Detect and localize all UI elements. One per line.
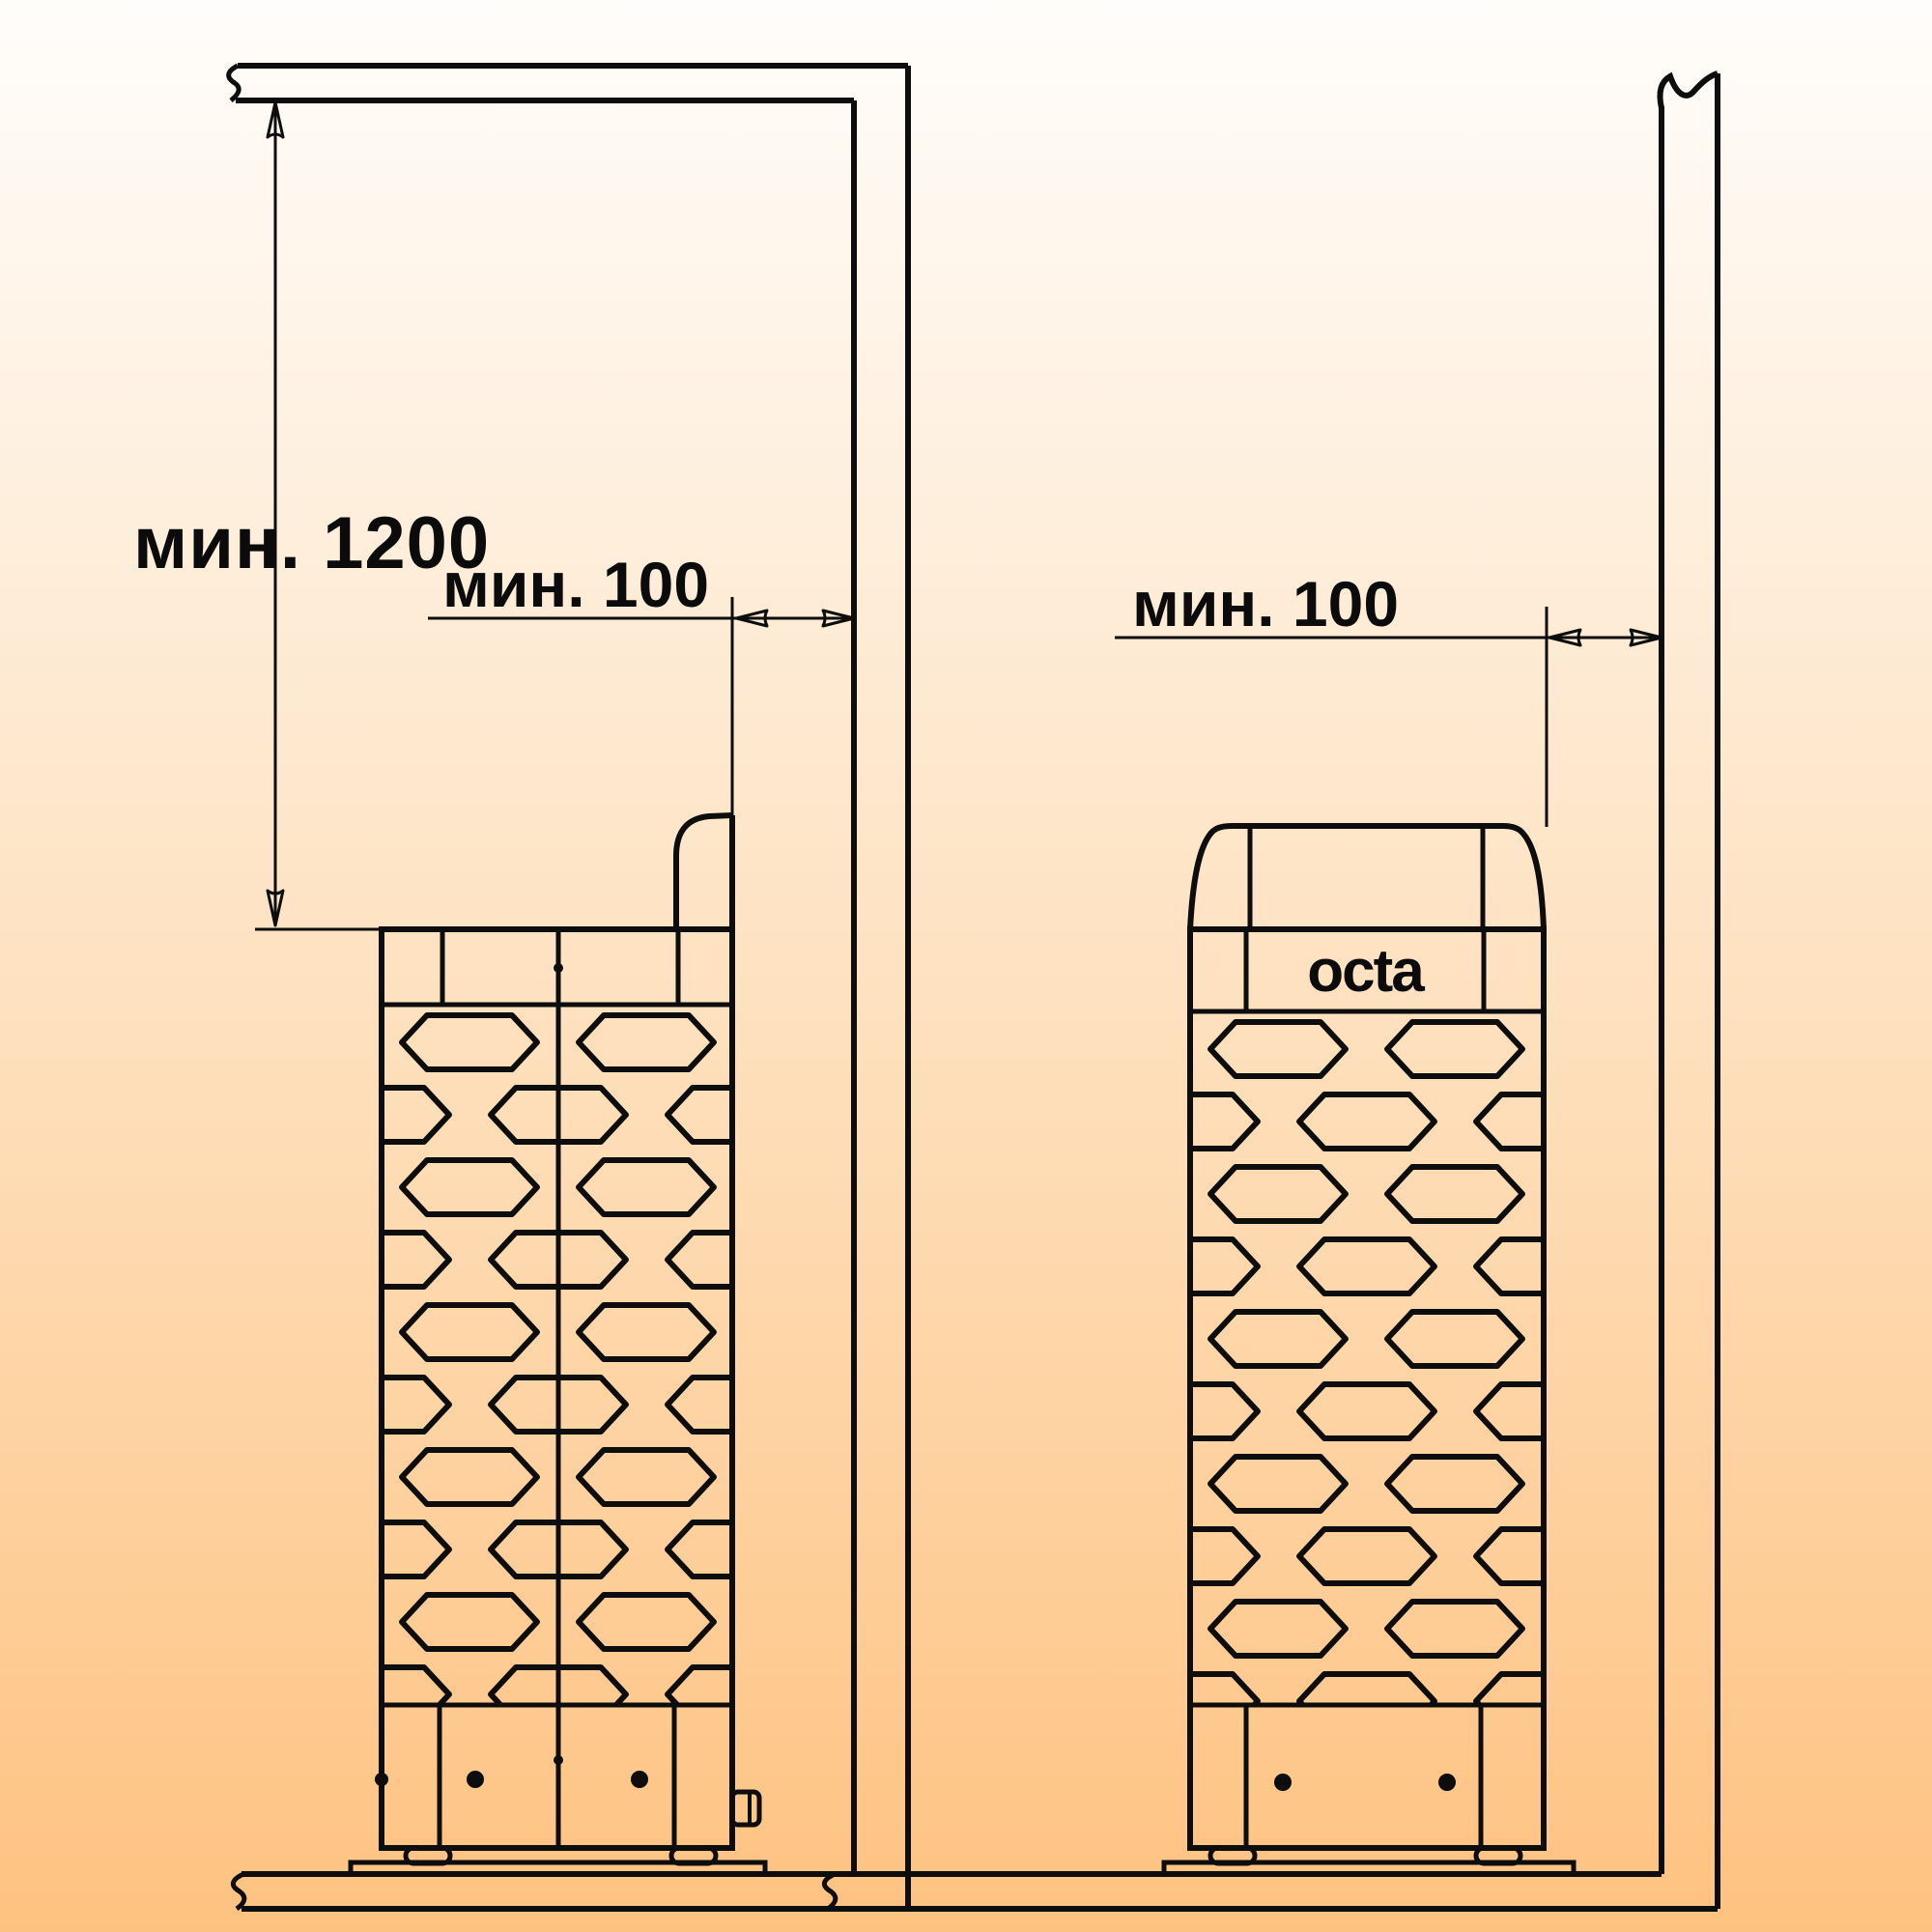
brand-logo: octa bbox=[1307, 938, 1425, 1005]
ceiling bbox=[229, 66, 908, 100]
skirt-screw-right bbox=[1438, 1774, 1456, 1791]
stone-grille-front bbox=[1190, 1011, 1544, 1705]
skirt-screw-edge bbox=[375, 1773, 388, 1786]
side-view: мин. 1200 мин. 100 bbox=[133, 66, 908, 1909]
wall-clearance-label: мин. 100 bbox=[442, 549, 709, 620]
top-cap-outline bbox=[1190, 826, 1544, 929]
dimension-height-clearance: мин. 1200 bbox=[133, 102, 490, 929]
floor-left-view bbox=[233, 1874, 908, 1909]
dimension-wall-clearance-left: мин. 100 bbox=[428, 549, 854, 815]
height-clearance-label: мин. 1200 bbox=[133, 502, 490, 584]
wall-left-view bbox=[854, 66, 908, 1909]
skirt-screw-right bbox=[631, 1771, 648, 1788]
ceiling-break-mark bbox=[229, 66, 239, 100]
base-plate bbox=[351, 1862, 765, 1874]
diagram-canvas: мин. 1200 мин. 100 bbox=[0, 0, 1932, 1932]
wall-right-view bbox=[1660, 73, 1718, 1909]
wall-clearance-label: мин. 100 bbox=[1132, 568, 1399, 639]
skirt-screw-left bbox=[1274, 1774, 1292, 1791]
front-view: octa мин. 100 bbox=[824, 73, 1718, 1909]
floor-break-mark bbox=[233, 1874, 243, 1909]
stone-grille-side bbox=[382, 1005, 732, 1705]
wall-break-mark bbox=[1660, 73, 1718, 108]
skirt-screw-left bbox=[467, 1771, 484, 1788]
seam-rivet-bottom bbox=[554, 1755, 563, 1765]
heater-side-view bbox=[351, 815, 765, 1874]
dimension-wall-clearance-right: мин. 100 bbox=[1115, 568, 1662, 827]
seam-rivet-top bbox=[554, 963, 563, 973]
base-plate bbox=[1164, 1862, 1574, 1874]
floor-break-mark bbox=[824, 1874, 835, 1909]
floor-right-view bbox=[824, 1874, 1718, 1909]
heater-front-view: octa bbox=[1164, 826, 1574, 1874]
control-housing bbox=[676, 815, 732, 929]
installation-clearance-diagram: мин. 1200 мин. 100 bbox=[0, 0, 1932, 1932]
cable-gland bbox=[732, 1792, 759, 1825]
